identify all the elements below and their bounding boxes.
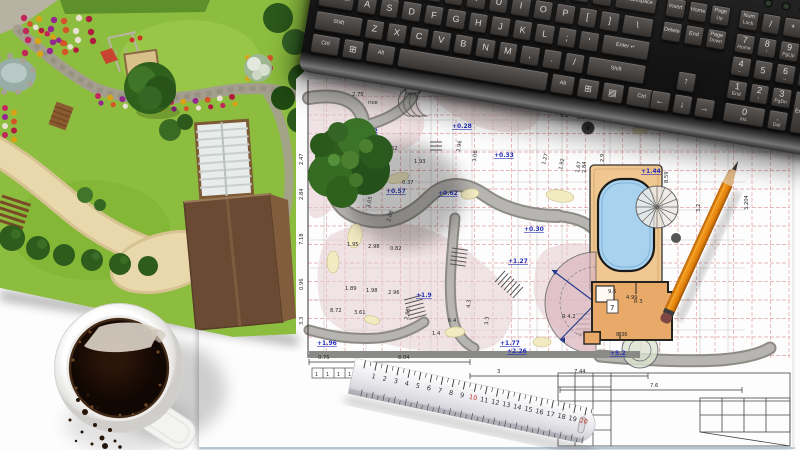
key-s: S <box>378 0 401 19</box>
dimension-label: 1.95 <box>347 242 359 248</box>
elevation-label: +1.9 <box>416 292 432 299</box>
key-end: End <box>683 23 706 46</box>
key-z: Z <box>363 18 386 41</box>
key-3: 3PgDn <box>770 86 793 109</box>
key--: → <box>693 97 716 120</box>
key-6: 6→ <box>774 63 797 86</box>
key--: ← <box>649 89 672 112</box>
key-9: 9PgUp <box>778 39 800 62</box>
dimension-label: 7.44 <box>574 369 586 375</box>
ruler-number: 15 <box>524 405 534 415</box>
dimension-label: 8.59 <box>664 171 670 183</box>
dimension-label: 7.6 <box>650 383 658 389</box>
key-num: NumLock <box>737 9 760 32</box>
dimension-label: R 3 <box>634 299 643 305</box>
key--: * <box>782 16 800 39</box>
building-footprint <box>584 282 672 344</box>
key--backspace: ← Backspace <box>613 0 658 15</box>
ruler-number: 13 <box>501 400 511 410</box>
elevation-label: +0.28 <box>452 123 472 130</box>
dimension-label: 8.72 <box>330 308 342 314</box>
elevation-label: +1.27 <box>508 258 528 265</box>
dimension-label: 0.96 <box>299 278 305 290</box>
key--: .Del <box>766 109 789 132</box>
key-5: 5 <box>752 59 775 82</box>
key-f: F <box>423 4 446 27</box>
dimension-label: rice <box>368 100 378 106</box>
dimension-label: R 4.2 <box>562 314 576 320</box>
key--: - <box>569 0 592 4</box>
dimension-label: 3.3 <box>484 316 491 325</box>
key-shift: Shift <box>313 9 363 37</box>
desk-scene: +0.02+0.28+0.33+0.62+0.57+0.30+1.44+1.27… <box>0 0 800 450</box>
dimension-label: 3 <box>497 369 500 375</box>
ruler-number: 16 <box>535 407 545 417</box>
key-n: N <box>474 36 497 59</box>
key-2: 2↓ <box>748 82 771 105</box>
dimension-label: 2.9 <box>600 154 606 162</box>
elevation-label: +1.96 <box>317 340 337 347</box>
dimension-label: 1.89 <box>345 286 357 292</box>
greenhouse <box>196 120 253 197</box>
key-alt: Alt <box>549 73 576 97</box>
white-flowering-tree <box>244 54 272 82</box>
key-v: V <box>430 29 453 52</box>
key-l: L <box>534 22 557 45</box>
key-4: 4← <box>729 55 752 78</box>
elevation-label: +0.33 <box>494 152 514 159</box>
key-insert: Insert <box>664 0 687 19</box>
dimension-label: 2.75 <box>352 92 364 98</box>
room-number-label: 7 <box>610 304 614 312</box>
dimension-label: 3.204 <box>744 194 750 210</box>
dimension-label: 7.18 <box>299 233 305 245</box>
ruler-number: 11 <box>479 395 489 405</box>
dimension-label: 8.04 <box>398 355 410 361</box>
key-k: K <box>511 19 534 42</box>
tick-label: 1 <box>315 372 318 378</box>
dimension-label: 3.06 <box>472 150 479 162</box>
key-page: PageDown <box>705 27 728 50</box>
key--: ; <box>556 26 579 49</box>
dimension-label: 2.84 <box>299 188 305 200</box>
key-r: R <box>421 0 444 3</box>
key-j: J <box>489 15 512 38</box>
hedge-row <box>60 0 210 14</box>
key--: . <box>541 47 564 70</box>
key--: ⊞ <box>341 38 366 61</box>
dimension-label: 2.98 <box>368 244 380 250</box>
key-p: P <box>554 2 577 25</box>
dimension-label: 2.84 <box>582 161 588 173</box>
garden-3d-render <box>0 0 322 337</box>
numlock-led <box>763 0 773 8</box>
key-o: O <box>532 0 555 21</box>
key-delete: Delete <box>660 20 683 43</box>
key-8: 8↑ <box>756 36 779 59</box>
key--: ↑ <box>675 70 698 93</box>
key--: \ <box>621 13 655 38</box>
dimension-label: 2.96 <box>388 290 400 296</box>
key--: ↓ <box>671 93 694 116</box>
key--: ' <box>578 30 601 53</box>
key-g: G <box>445 7 468 30</box>
key-i: I <box>510 0 533 17</box>
tick-label: 1 <box>348 372 351 378</box>
key-h: H <box>467 11 490 34</box>
dimension-label: 3.61 <box>354 310 366 316</box>
key-d: D <box>400 0 423 23</box>
dimension-label: 3.2 <box>696 204 702 212</box>
key-x: X <box>385 21 408 44</box>
key-home: Home <box>686 0 709 23</box>
dimension-label: 8.36 <box>616 332 628 338</box>
ruler-number: 12 <box>490 398 500 408</box>
key-a: A <box>356 0 379 16</box>
elevation-label: +2.26 <box>507 348 527 355</box>
house-roof <box>184 194 296 330</box>
key-c: C <box>408 25 431 48</box>
tick-label: 1 <box>326 372 329 378</box>
capslock-led <box>781 2 791 11</box>
key-b: B <box>452 33 475 56</box>
key--: [ <box>576 6 599 29</box>
dimension-label: 3.3 <box>299 317 305 325</box>
key-enter-: Enter ↵ <box>600 33 650 61</box>
key--: / <box>563 51 586 74</box>
key--: / <box>759 12 782 35</box>
dimension-label: 0.75 <box>318 355 330 361</box>
ruler-number: 14 <box>512 402 522 412</box>
pool-area <box>590 165 662 293</box>
key--: = <box>591 0 614 7</box>
dimension-label: 0.82 <box>390 246 402 252</box>
key--: , <box>519 44 542 67</box>
elevation-label: +0.30 <box>524 226 544 233</box>
ruler-number: 19 <box>568 414 578 424</box>
elevation-label: +5.2 <box>610 350 626 357</box>
key-u: U <box>488 0 511 14</box>
ruler-number: 20 <box>579 416 589 426</box>
dimension-label: 6.4 <box>448 318 457 324</box>
dimension-label: 9.6 <box>608 289 616 295</box>
ruler-number: 17 <box>546 409 556 419</box>
tick-label: 1 <box>337 372 340 378</box>
elevation-label: +1.77 <box>500 340 520 347</box>
ruler-number: 10 <box>468 393 478 403</box>
key-7: 7Home <box>733 32 756 55</box>
key--: ] <box>599 9 622 32</box>
key-y: Y <box>465 0 488 10</box>
dimension-label: 1.98 <box>366 288 378 294</box>
key--: ⊞ <box>576 77 601 100</box>
key--: ▤ <box>600 81 625 104</box>
key-t: T <box>443 0 466 6</box>
elevation-label: +1.44 <box>641 168 661 175</box>
key-1: 1End <box>726 78 749 101</box>
dimension-label: 1.4 <box>432 331 441 337</box>
dimension-label: 4.3 <box>466 299 473 308</box>
key-m: M <box>496 40 519 63</box>
key-page: PageUp <box>709 4 732 27</box>
dimension-label: 2.47 <box>299 153 305 165</box>
ruler-number: 18 <box>557 412 567 422</box>
